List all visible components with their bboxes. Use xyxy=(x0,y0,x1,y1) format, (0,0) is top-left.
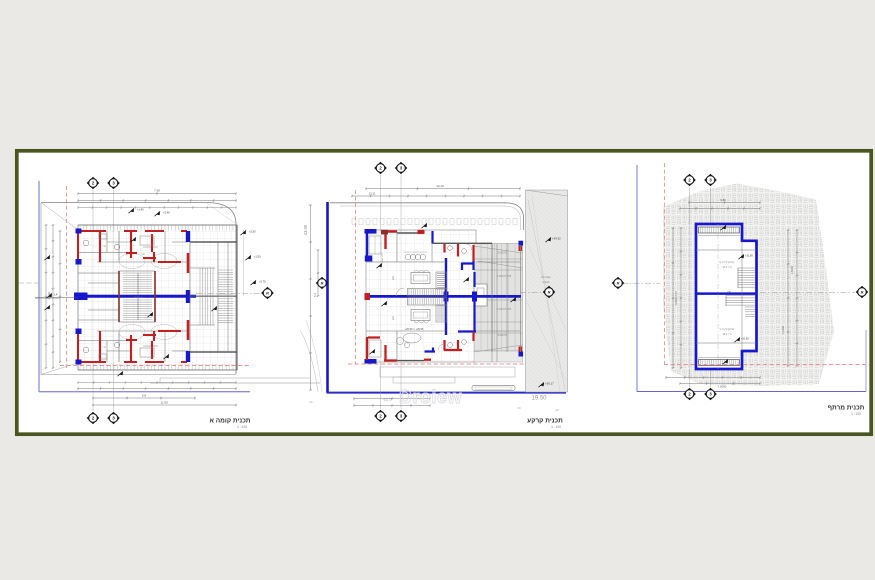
svg-text:2: 2 xyxy=(314,293,317,299)
svg-text:א: א xyxy=(548,290,551,295)
svg-text:1 : 100: 1 : 100 xyxy=(851,412,861,416)
svg-text:45.0 מ"ר: 45.0 מ"ר xyxy=(722,333,731,336)
svg-text:סלון: סלון xyxy=(391,275,395,280)
svg-text:חדר: חדר xyxy=(102,246,106,248)
svg-text:6.80: 6.80 xyxy=(720,198,726,202)
svg-text:חדר: חדר xyxy=(102,347,106,349)
svg-text:א: א xyxy=(617,281,620,286)
svg-text:3′105.67 3′78: 3′105.67 3′78 xyxy=(497,275,512,278)
svg-text:43.00: 43.00 xyxy=(303,224,308,235)
svg-text:+36.95 = +36.95: +36.95 = +36.95 xyxy=(405,327,425,331)
svg-text:+2.40: +2.40 xyxy=(163,211,170,215)
svg-text:-12.5: -12.5 xyxy=(382,396,392,401)
svg-text:תכנית קומה א: תכנית קומה א xyxy=(210,418,251,425)
svg-text:מרתף דירה ב': מרתף דירה ב' xyxy=(719,327,735,331)
svg-text:+1.50: +1.50 xyxy=(254,255,261,259)
svg-text:7.10/60: 7.10/60 xyxy=(782,325,785,334)
svg-text:14.10: 14.10 xyxy=(436,184,444,188)
svg-text:UP: UP xyxy=(727,291,731,294)
svg-text:13.10: 13.10 xyxy=(369,192,376,196)
svg-text:45.0 מ"ר: 45.0 מ"ר xyxy=(722,266,731,269)
svg-text:3′105/78: 3′105/78 xyxy=(497,334,507,337)
svg-text:א: א xyxy=(861,290,864,295)
svg-text:5.8: 5.8 xyxy=(142,394,147,398)
svg-text:סלון: סלון xyxy=(391,315,395,320)
svg-text:א: א xyxy=(266,291,269,296)
svg-text:1 : 100: 1 : 100 xyxy=(237,425,247,429)
svg-text:Droiew: Droiew xyxy=(399,387,463,407)
svg-text:1 : 100: 1 : 100 xyxy=(551,425,561,429)
svg-text:7.05/60: 7.05/60 xyxy=(718,385,727,389)
svg-text:7.90: 7.90 xyxy=(154,189,160,193)
svg-text:+31.60: +31.60 xyxy=(745,255,753,258)
svg-text:20: 20 xyxy=(555,408,559,412)
svg-text:+2.50: +2.50 xyxy=(249,230,256,234)
svg-text:3′105.67 3′78: 3′105.67 3′78 xyxy=(497,308,512,311)
svg-text:תכנית מרתף: תכנית מרתף xyxy=(828,405,865,412)
svg-text:8.90/60 7.43: 8.90/60 7.43 xyxy=(675,291,678,305)
svg-text:19.50: 19.50 xyxy=(531,396,547,402)
svg-text:+31.60: +31.60 xyxy=(741,338,749,341)
svg-text:א: א xyxy=(321,281,324,286)
svg-text:מרתף דירה א': מרתף דירה א' xyxy=(719,260,735,264)
svg-text:3′105/78: 3′105/78 xyxy=(497,252,507,255)
svg-text:מופרע: מופרע xyxy=(543,281,550,284)
svg-text:חדר שינה: חדר שינה xyxy=(381,253,384,263)
svg-text:תכנית קרקע: תכנית קרקע xyxy=(527,418,563,425)
svg-text:+34.32: +34.32 xyxy=(552,237,561,241)
svg-text:'יח' מדרגות: 'יח' מדרגות xyxy=(133,297,143,299)
svg-text:ממד: ממד xyxy=(141,254,146,256)
svg-text:שטח לא: שטח לא xyxy=(541,275,550,279)
svg-text:11.90: 11.90 xyxy=(160,401,168,405)
svg-text:4.50/60: 4.50/60 xyxy=(791,265,794,274)
svg-text:+2.75: +2.75 xyxy=(259,280,266,284)
svg-text:+36.17: +36.17 xyxy=(545,382,554,386)
svg-text:+1.40: +1.40 xyxy=(137,208,144,212)
svg-text:20: 20 xyxy=(517,406,521,410)
